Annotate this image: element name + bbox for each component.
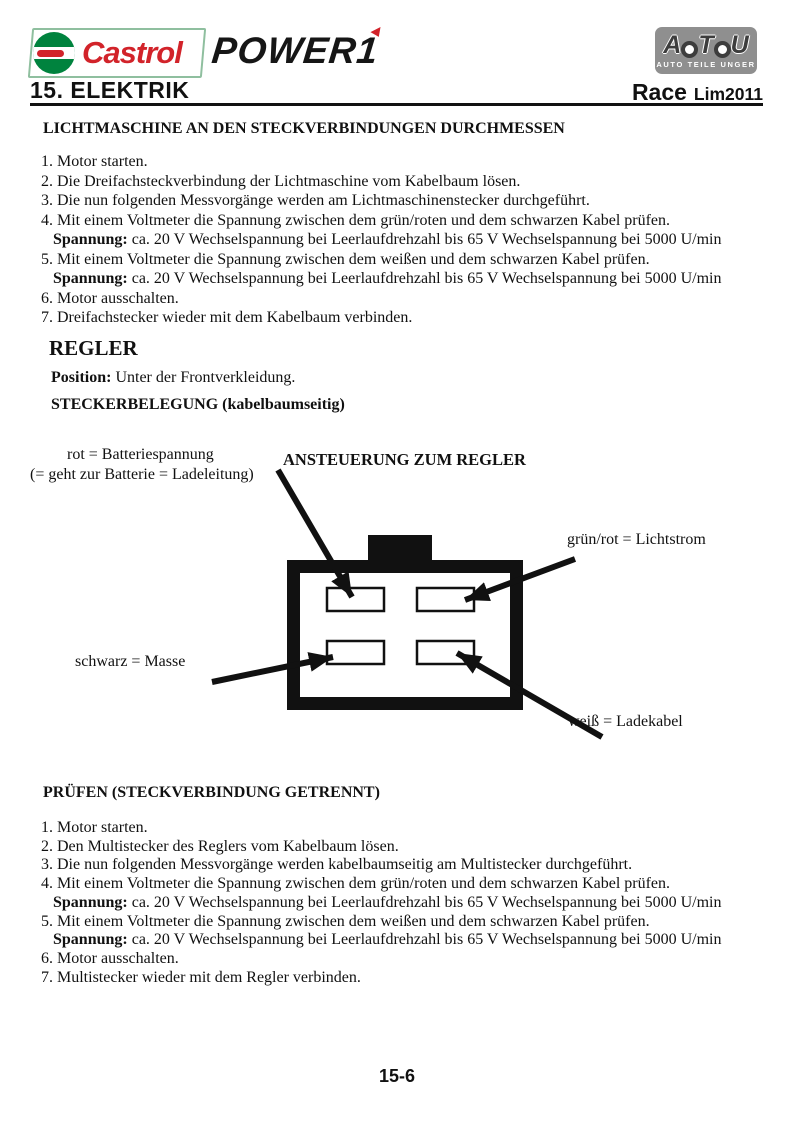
atu-letter-u: U — [731, 33, 749, 58]
position-value: Unter der Frontverkleidung. — [111, 369, 295, 386]
pin-bottom-left — [327, 641, 384, 664]
list-item-spannung: Spannung: ca. 20 V Wechselspannung bei L… — [41, 269, 721, 289]
model-variant: Lim2011 — [694, 84, 763, 105]
list-item: 2. Die Dreifachsteckverbindung der Licht… — [41, 172, 721, 192]
castrol-logo: Castrol — [28, 28, 206, 78]
list-item: 5. Mit einem Voltmeter die Spannung zwis… — [41, 250, 721, 270]
list-item-spannung: Spannung: ca. 20 V Wechselspannung bei L… — [41, 931, 721, 950]
connector-diagram — [0, 440, 794, 760]
section1-title: LICHTMASCHINE AN DEN STECKVERBINDUNGEN D… — [43, 120, 565, 138]
position-label: Position: — [51, 369, 111, 386]
atu-wheel-icon — [681, 41, 698, 58]
section2-steps: 1. Motor starten. 2. Den Multistecker de… — [41, 819, 721, 987]
list-item: 3. Die nun folgenden Messvorgänge werden… — [41, 191, 721, 211]
pin-top-left — [327, 588, 384, 611]
list-item: 5. Mit einem Voltmeter die Spannung zwis… — [41, 913, 721, 932]
atu-letter-t: T — [698, 33, 713, 58]
list-item: 2. Den Multistecker des Reglers vom Kabe… — [41, 838, 721, 857]
list-item: 7. Dreifachstecker wieder mit dem Kabelb… — [41, 308, 721, 328]
list-item: 7. Multistecker wieder mit dem Regler ve… — [41, 969, 721, 988]
list-item-spannung: Spannung: ca. 20 V Wechselspannung bei L… — [41, 894, 721, 913]
atu-letter-a: A — [663, 33, 681, 58]
castrol-circle-icon — [33, 32, 75, 74]
atu-letters: A T U — [663, 33, 748, 58]
chapter-title: 15. ELEKTRIK — [30, 77, 189, 104]
power1-wordmark: POWER1 — [210, 30, 381, 71]
power1-logo: POWER1 — [210, 30, 381, 72]
atu-wheel-icon — [714, 41, 731, 58]
steckerbelegung-title: STECKERBELEGUNG (kabelbaumseitig) — [51, 396, 345, 414]
connector-tab — [368, 535, 432, 562]
list-item: 4. Mit einem Voltmeter die Spannung zwis… — [41, 211, 721, 231]
castrol-wordmark: Castrol — [82, 35, 182, 71]
castrol-red-bar — [37, 50, 64, 57]
regler-position-line: Position: Unter der Frontverkleidung. — [51, 369, 295, 387]
page-number: 15-6 — [0, 1066, 794, 1087]
model-title: Race Lim2011 — [632, 79, 763, 106]
list-item: 4. Mit einem Voltmeter die Spannung zwis… — [41, 875, 721, 894]
list-item: 6. Motor ausschalten. — [41, 289, 721, 309]
manual-page: Castrol POWER1 A T U AUTO TEILE UNGER 15… — [0, 0, 794, 1122]
list-item: 1. Motor starten. — [41, 819, 721, 838]
atu-logo: A T U AUTO TEILE UNGER — [655, 27, 757, 74]
list-item: 6. Motor ausschalten. — [41, 950, 721, 969]
list-item-spannung: Spannung: ca. 20 V Wechselspannung bei L… — [41, 230, 721, 250]
atu-caption: AUTO TEILE UNGER — [656, 60, 755, 69]
section2-title: PRÜFEN (STECKVERBINDUNG GETRENNT) — [43, 784, 380, 802]
regler-title: REGLER — [49, 336, 138, 361]
list-item: 3. Die nun folgenden Messvorgänge werden… — [41, 856, 721, 875]
section1-steps: 1. Motor starten. 2. Die Dreifachsteckve… — [41, 152, 721, 328]
list-item: 1. Motor starten. — [41, 152, 721, 172]
model-name: Race — [632, 79, 687, 106]
castrol-logo-inner: Castrol — [32, 32, 182, 74]
header-rule — [30, 103, 763, 106]
